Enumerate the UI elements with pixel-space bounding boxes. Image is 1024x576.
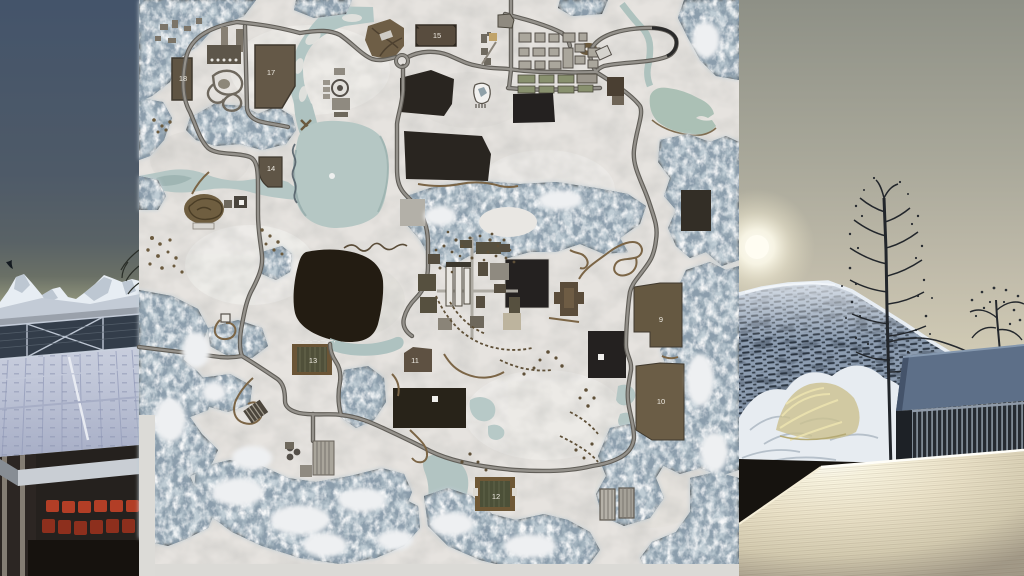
svg-text:11: 11 [411, 356, 419, 365]
svg-text:14: 14 [267, 164, 275, 173]
svg-text:10: 10 [657, 397, 665, 406]
svg-text:9: 9 [659, 315, 663, 324]
svg-text:12: 12 [492, 492, 500, 501]
svg-text:13: 13 [309, 356, 317, 365]
svg-text:17: 17 [267, 68, 275, 77]
svg-text:15: 15 [433, 31, 441, 40]
svg-text:18: 18 [179, 74, 187, 83]
